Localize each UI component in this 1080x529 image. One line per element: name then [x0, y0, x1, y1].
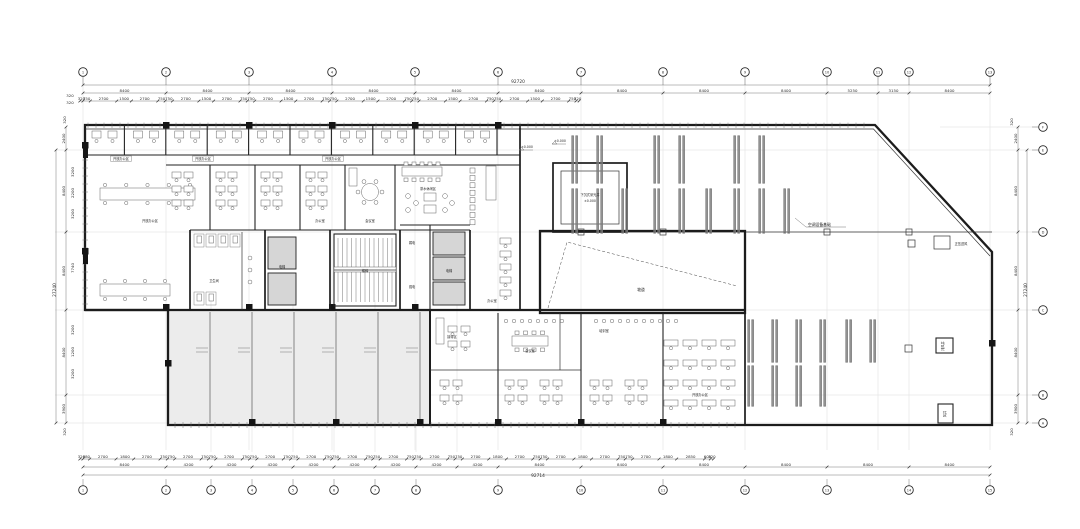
- chair: [464, 348, 467, 351]
- chair: [175, 179, 178, 182]
- desk: [461, 341, 470, 347]
- dim-label: 320: [574, 96, 582, 101]
- chair: [504, 319, 508, 323]
- wall-pier: [83, 142, 88, 158]
- chair: [552, 319, 556, 323]
- chair: [470, 168, 475, 173]
- desk: [505, 380, 514, 386]
- dim-label: 1500: [530, 96, 540, 101]
- floor-mark: [734, 189, 735, 233]
- grid-bubble-label: F: [1042, 125, 1044, 129]
- desk: [216, 200, 225, 206]
- chair: [146, 201, 149, 204]
- floor-mark: [763, 136, 764, 183]
- desk: [721, 340, 735, 346]
- desk: [683, 360, 697, 366]
- desk: [228, 172, 237, 178]
- dim-label: 2700: [556, 454, 566, 459]
- chair: [524, 331, 528, 335]
- dim-label: 2700: [304, 96, 314, 101]
- dim-label: 2700: [345, 96, 355, 101]
- chair: [688, 367, 691, 370]
- lounge-chair: [450, 201, 455, 206]
- chair: [470, 220, 475, 225]
- room-label-meeting: 会议室: [525, 348, 535, 353]
- grid-bubble-label: 2: [165, 488, 167, 492]
- desk: [306, 172, 315, 178]
- desk: [216, 172, 225, 178]
- column: [246, 304, 253, 311]
- dim-label: 4200: [473, 462, 483, 467]
- chair: [515, 331, 519, 335]
- desk: [318, 200, 327, 206]
- annotation-wind-shaft: 风井: [942, 411, 947, 417]
- room-label-weak_elec: 弱电: [409, 240, 416, 245]
- desk: [228, 186, 237, 192]
- chair: [264, 193, 267, 196]
- floor-mark: [683, 136, 684, 183]
- lounge-chair: [406, 208, 411, 213]
- dim-label: 750: [414, 454, 422, 459]
- desk: [261, 172, 270, 178]
- shell-space-fill: [168, 310, 430, 425]
- chair: [261, 139, 264, 142]
- grid-bubble-label: 7: [374, 488, 376, 492]
- desk: [500, 277, 511, 283]
- dim-label: 8400: [617, 88, 627, 93]
- toilet: [197, 294, 202, 301]
- column: [246, 122, 253, 129]
- desk: [423, 131, 432, 138]
- column: [417, 419, 424, 426]
- room-label-elevator: 电梯: [446, 268, 453, 273]
- dim-label: 1500: [119, 96, 129, 101]
- chair: [641, 387, 644, 390]
- floor-mark: [683, 189, 684, 233]
- desk: [453, 380, 462, 386]
- floor-mark: [572, 189, 573, 233]
- chair: [726, 387, 729, 390]
- column: [163, 122, 170, 129]
- chair: [103, 279, 106, 282]
- chair: [436, 162, 440, 166]
- grid-bubble-label: 12: [907, 70, 912, 74]
- dim-label: 750: [208, 454, 216, 459]
- desk: [638, 380, 647, 386]
- dim-label: 2700: [386, 96, 396, 101]
- chair: [628, 402, 631, 405]
- floor-mark: [759, 189, 760, 233]
- desk: [232, 131, 241, 138]
- cabinet: [349, 168, 357, 186]
- bottom-total-dimension: 92714: [531, 473, 545, 479]
- chair: [528, 319, 532, 323]
- desk: [702, 360, 716, 366]
- toilet: [209, 294, 214, 301]
- dim-label: 2700: [388, 454, 398, 459]
- dim-label: 8400: [120, 462, 130, 467]
- desk: [540, 380, 549, 386]
- desk: [172, 186, 181, 192]
- chair: [556, 402, 559, 405]
- chair: [321, 193, 324, 196]
- chair: [136, 139, 139, 142]
- dim-label: 8400: [699, 88, 709, 93]
- desk: [149, 131, 158, 138]
- grid-bubble-label: 11: [876, 70, 881, 74]
- chair: [231, 179, 234, 182]
- ramp-hall-wall: [540, 231, 745, 313]
- dim-label: 8400: [369, 88, 379, 93]
- floor-mark: [820, 366, 821, 406]
- grid-bubble-label: 15: [988, 488, 993, 492]
- chair: [125, 201, 128, 204]
- chair: [231, 207, 234, 210]
- desk: [261, 200, 270, 206]
- chair: [343, 139, 346, 142]
- floor-mark: [734, 136, 735, 183]
- cabinet: [486, 166, 496, 200]
- chair: [219, 139, 222, 142]
- desk: [518, 380, 527, 386]
- chair: [404, 162, 408, 166]
- desk: [702, 340, 716, 346]
- desk: [683, 340, 697, 346]
- desk: [683, 400, 697, 406]
- chair: [468, 139, 471, 142]
- dim-label: 2700: [140, 96, 150, 101]
- chair: [219, 179, 222, 182]
- floor-mark: [752, 366, 753, 406]
- chair: [726, 367, 729, 370]
- dim-label: 2700: [471, 454, 481, 459]
- chair: [235, 139, 238, 142]
- dim-label: 1800: [120, 454, 130, 459]
- grid-bubble-label: 13: [825, 488, 830, 492]
- chair: [412, 178, 416, 182]
- chair: [318, 139, 321, 142]
- dim-label: 1800: [493, 454, 503, 459]
- desk: [540, 395, 549, 401]
- floor-mark: [622, 189, 623, 233]
- chair: [111, 139, 114, 142]
- chair: [187, 193, 190, 196]
- grid-bubble-label: 1: [82, 70, 84, 74]
- dim-label: 2700: [600, 454, 610, 459]
- chair: [543, 387, 546, 390]
- desk: [590, 395, 599, 401]
- chair: [362, 200, 366, 204]
- floor-mark: [748, 366, 749, 406]
- chair: [436, 178, 440, 182]
- floor-mark: [776, 366, 777, 406]
- desk: [108, 131, 117, 138]
- dim-label: 4200: [391, 462, 401, 467]
- room-label-office: 办公室: [487, 298, 497, 303]
- lounge-chair: [443, 208, 448, 213]
- dim-label: 320: [708, 454, 716, 459]
- desk: [603, 395, 612, 401]
- bench-table: [100, 284, 170, 296]
- chair: [146, 183, 149, 186]
- dim-label: 4200: [184, 462, 194, 467]
- grid-bubble-label: 11: [661, 488, 666, 492]
- sunken-lightwell-inner: [561, 171, 619, 224]
- room-label-training: 培训室: [599, 328, 609, 333]
- desk: [500, 238, 511, 244]
- toilet: [221, 236, 226, 243]
- dim-label: 4200: [268, 462, 278, 467]
- dim-label: 2700: [515, 454, 525, 459]
- dim-label: 2700: [183, 454, 193, 459]
- chair: [484, 139, 487, 142]
- chair: [626, 319, 630, 323]
- dim-label: 8400: [452, 88, 462, 93]
- dim-label: 7740: [70, 263, 75, 273]
- floor-mark: [710, 189, 711, 233]
- desk: [184, 172, 193, 178]
- dim-label: 2700: [509, 96, 519, 101]
- desk: [274, 131, 283, 138]
- room-label-open_office: 开放办公区: [142, 218, 159, 223]
- floor-plan-page: 3207502700150027007507502700150027007507…: [0, 0, 1080, 529]
- dim-label: 2400: [1013, 133, 1018, 143]
- dim-label: 2700: [222, 96, 232, 101]
- chair: [470, 198, 475, 203]
- chair: [451, 348, 454, 351]
- floor-mark: [820, 320, 821, 362]
- grid-bubble-label: 1: [82, 488, 84, 492]
- dim-label: 750: [167, 454, 175, 459]
- dim-label: 750: [291, 454, 299, 459]
- wall-pier: [83, 248, 88, 264]
- chair: [504, 284, 507, 287]
- dim-label: 8400: [1013, 266, 1018, 276]
- chair: [504, 245, 507, 248]
- dim-label: 3900: [61, 404, 66, 414]
- chair: [194, 139, 197, 142]
- room-label-wc: 卫生间: [209, 278, 219, 283]
- dim-label: 320: [1009, 118, 1014, 126]
- dim-label: 4200: [432, 462, 442, 467]
- chair: [103, 201, 106, 204]
- desk: [306, 186, 315, 192]
- chair: [669, 407, 672, 410]
- dim-label: 8400: [286, 88, 296, 93]
- floor-mark: [850, 320, 851, 362]
- chair: [321, 179, 324, 182]
- grid-bubble-label: 7: [580, 70, 582, 74]
- chair: [470, 205, 475, 210]
- annotation-sunken-level: ±0.000: [584, 199, 596, 203]
- desk: [216, 131, 225, 138]
- column: [249, 419, 256, 426]
- chair: [606, 387, 609, 390]
- dim-label: 750: [332, 454, 340, 459]
- dim-label: 4200: [350, 462, 360, 467]
- room-label-elevator: 电梯: [279, 264, 286, 269]
- dim-label: 2200: [70, 188, 75, 198]
- chair: [443, 402, 446, 405]
- dim-label: 2700: [551, 96, 561, 101]
- chair: [103, 297, 106, 300]
- room-label-stair: 楼梯: [362, 268, 369, 273]
- chair: [669, 367, 672, 370]
- chair: [594, 319, 598, 323]
- chair: [666, 319, 670, 323]
- desk: [683, 380, 697, 386]
- desk: [191, 131, 200, 138]
- dim-label: 320: [62, 428, 67, 436]
- lounge-sofa: [424, 205, 436, 213]
- chair: [541, 331, 545, 335]
- chair: [650, 319, 654, 323]
- dim-label: 8400: [61, 347, 66, 357]
- chair: [442, 139, 445, 142]
- desk: [625, 395, 634, 401]
- desk: [184, 186, 193, 192]
- core-elevators-stairs: [190, 225, 470, 310]
- lounge-sofa: [424, 193, 436, 201]
- annotation-ac-base: 空调设备基础: [808, 222, 831, 227]
- dim-label: 5250: [848, 88, 858, 93]
- floor-mark: [601, 136, 602, 183]
- chair: [544, 319, 548, 323]
- chair: [543, 402, 546, 405]
- dim-label: 2700: [263, 96, 273, 101]
- dim-label: 2700: [641, 454, 651, 459]
- desk: [448, 341, 457, 347]
- chair: [374, 200, 378, 204]
- dim-label: 750: [455, 454, 463, 459]
- chair: [560, 319, 564, 323]
- desk: [664, 340, 678, 346]
- dim-label: 320: [66, 93, 74, 98]
- chair: [103, 183, 106, 186]
- chair: [470, 190, 475, 195]
- chair: [520, 319, 524, 323]
- column: [989, 340, 996, 347]
- dim-label: 4200: [227, 462, 237, 467]
- chair: [401, 139, 404, 142]
- chair: [669, 387, 672, 390]
- dim-label: 320: [66, 100, 74, 105]
- desk: [184, 200, 193, 206]
- dim-label: 1800: [578, 454, 588, 459]
- desk: [315, 131, 324, 138]
- floor-mark: [679, 136, 680, 183]
- chair: [412, 162, 416, 166]
- chair: [443, 387, 446, 390]
- chair: [658, 319, 662, 323]
- floor-mark: [748, 320, 749, 362]
- grid-bubble-label: 3: [210, 488, 212, 492]
- desk: [505, 395, 514, 401]
- desk: [664, 380, 678, 386]
- room-label-open_office: 开放办公区: [195, 156, 212, 161]
- dim-label: 750: [165, 96, 173, 101]
- chair: [628, 387, 631, 390]
- floor-mark: [788, 189, 789, 233]
- floor-mark: [772, 320, 773, 362]
- desk: [273, 200, 282, 206]
- desk: [258, 131, 267, 138]
- floor-mark: [776, 320, 777, 362]
- room-label-pantry: 茶水休闲区: [420, 186, 437, 191]
- dim-label: 750: [329, 96, 337, 101]
- dim-label: 8400: [781, 462, 791, 467]
- chair: [688, 387, 691, 390]
- dim-label: 2700: [347, 454, 357, 459]
- floor-mark: [763, 189, 764, 233]
- desk: [92, 131, 101, 138]
- room-label-meeting: 会议室: [365, 218, 375, 223]
- chair: [508, 387, 511, 390]
- chair: [428, 178, 432, 182]
- desk: [273, 186, 282, 192]
- chair: [359, 139, 362, 142]
- chair: [231, 193, 234, 196]
- chair: [125, 183, 128, 186]
- dim-label: 8400: [781, 88, 791, 93]
- dim-label: 8400: [203, 88, 213, 93]
- floor-mark: [752, 320, 753, 362]
- dim-label: 3200: [70, 167, 75, 177]
- desk: [382, 131, 391, 138]
- floor-mark: [738, 189, 739, 233]
- chair: [504, 271, 507, 274]
- lounge-chair: [443, 194, 448, 199]
- chair: [167, 183, 170, 186]
- chair: [187, 207, 190, 210]
- dim-label: 3200: [70, 209, 75, 219]
- pressurized-shaft-box: [934, 236, 950, 249]
- dim-label: 1200: [70, 347, 75, 357]
- chair: [380, 190, 384, 194]
- chair: [618, 319, 622, 323]
- grid-bubble-label: 10: [825, 70, 830, 74]
- dim-label: 2850: [686, 454, 696, 459]
- floor-mark: [654, 136, 655, 183]
- dim-label: 8400: [61, 266, 66, 276]
- chair: [726, 347, 729, 350]
- floor-mark: [784, 189, 785, 233]
- dim-label: 3900: [1013, 404, 1018, 414]
- dim-label: 8400: [535, 88, 545, 93]
- chair: [167, 201, 170, 204]
- room-label-strong_elec: 强电: [409, 284, 416, 289]
- dim-label: 320: [62, 116, 67, 124]
- conference-table: [402, 167, 442, 176]
- lounge-chair: [406, 194, 411, 199]
- floor-mark: [796, 366, 797, 406]
- desk: [440, 380, 449, 386]
- annotation-pressurized-air: 正压送风: [955, 241, 969, 246]
- round-table: [362, 184, 379, 201]
- desk: [299, 131, 308, 138]
- chair: [521, 402, 524, 405]
- chair: [143, 297, 146, 300]
- desk: [318, 172, 327, 178]
- floor-mark: [800, 366, 801, 406]
- dim-label: 8400: [1013, 347, 1018, 357]
- chair: [426, 139, 429, 142]
- chair: [504, 258, 507, 261]
- chair: [276, 193, 279, 196]
- desk: [500, 264, 511, 270]
- dim-label: 3200: [70, 369, 75, 379]
- desk: [638, 395, 647, 401]
